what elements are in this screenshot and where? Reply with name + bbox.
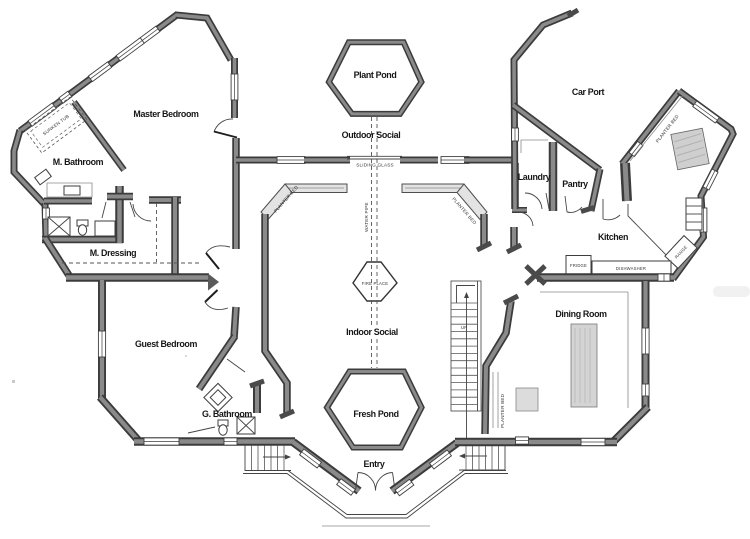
svg-text:Indoor Social: Indoor Social bbox=[346, 327, 398, 337]
svg-text:Fresh Pond: Fresh Pond bbox=[353, 409, 398, 419]
svg-text:Outdoor Social: Outdoor Social bbox=[342, 130, 401, 140]
svg-text:Dining Room: Dining Room bbox=[555, 309, 607, 319]
svg-text:FRIDGE: FRIDGE bbox=[570, 263, 587, 268]
svg-text:G. Bathroom: G. Bathroom bbox=[202, 409, 252, 419]
svg-text:PLANTER BED: PLANTER BED bbox=[500, 393, 505, 428]
svg-text:SLIDING GLASS: SLIDING GLASS bbox=[356, 163, 394, 168]
svg-text:Pantry: Pantry bbox=[562, 179, 588, 189]
svg-text:M. Dressing: M. Dressing bbox=[90, 248, 136, 258]
svg-text:Entry: Entry bbox=[364, 459, 385, 469]
svg-text:Guest Bedroom: Guest Bedroom bbox=[135, 339, 197, 349]
svg-text:M. Bathroom: M. Bathroom bbox=[53, 157, 104, 167]
svg-text:FIRE PLACE: FIRE PLACE bbox=[362, 281, 388, 286]
svg-text:UP: UP bbox=[461, 325, 467, 330]
svg-text:DISHWASHER: DISHWASHER bbox=[616, 266, 646, 271]
svg-text:Kitchen: Kitchen bbox=[598, 232, 628, 242]
svg-text:Laundry: Laundry bbox=[518, 172, 551, 182]
svg-text:Car Port: Car Port bbox=[572, 87, 605, 97]
svg-text:Master Bedroom: Master Bedroom bbox=[133, 109, 199, 119]
svg-text:WATER PIPE: WATER PIPE bbox=[364, 202, 369, 232]
svg-text:Plant Pond: Plant Pond bbox=[354, 70, 397, 80]
